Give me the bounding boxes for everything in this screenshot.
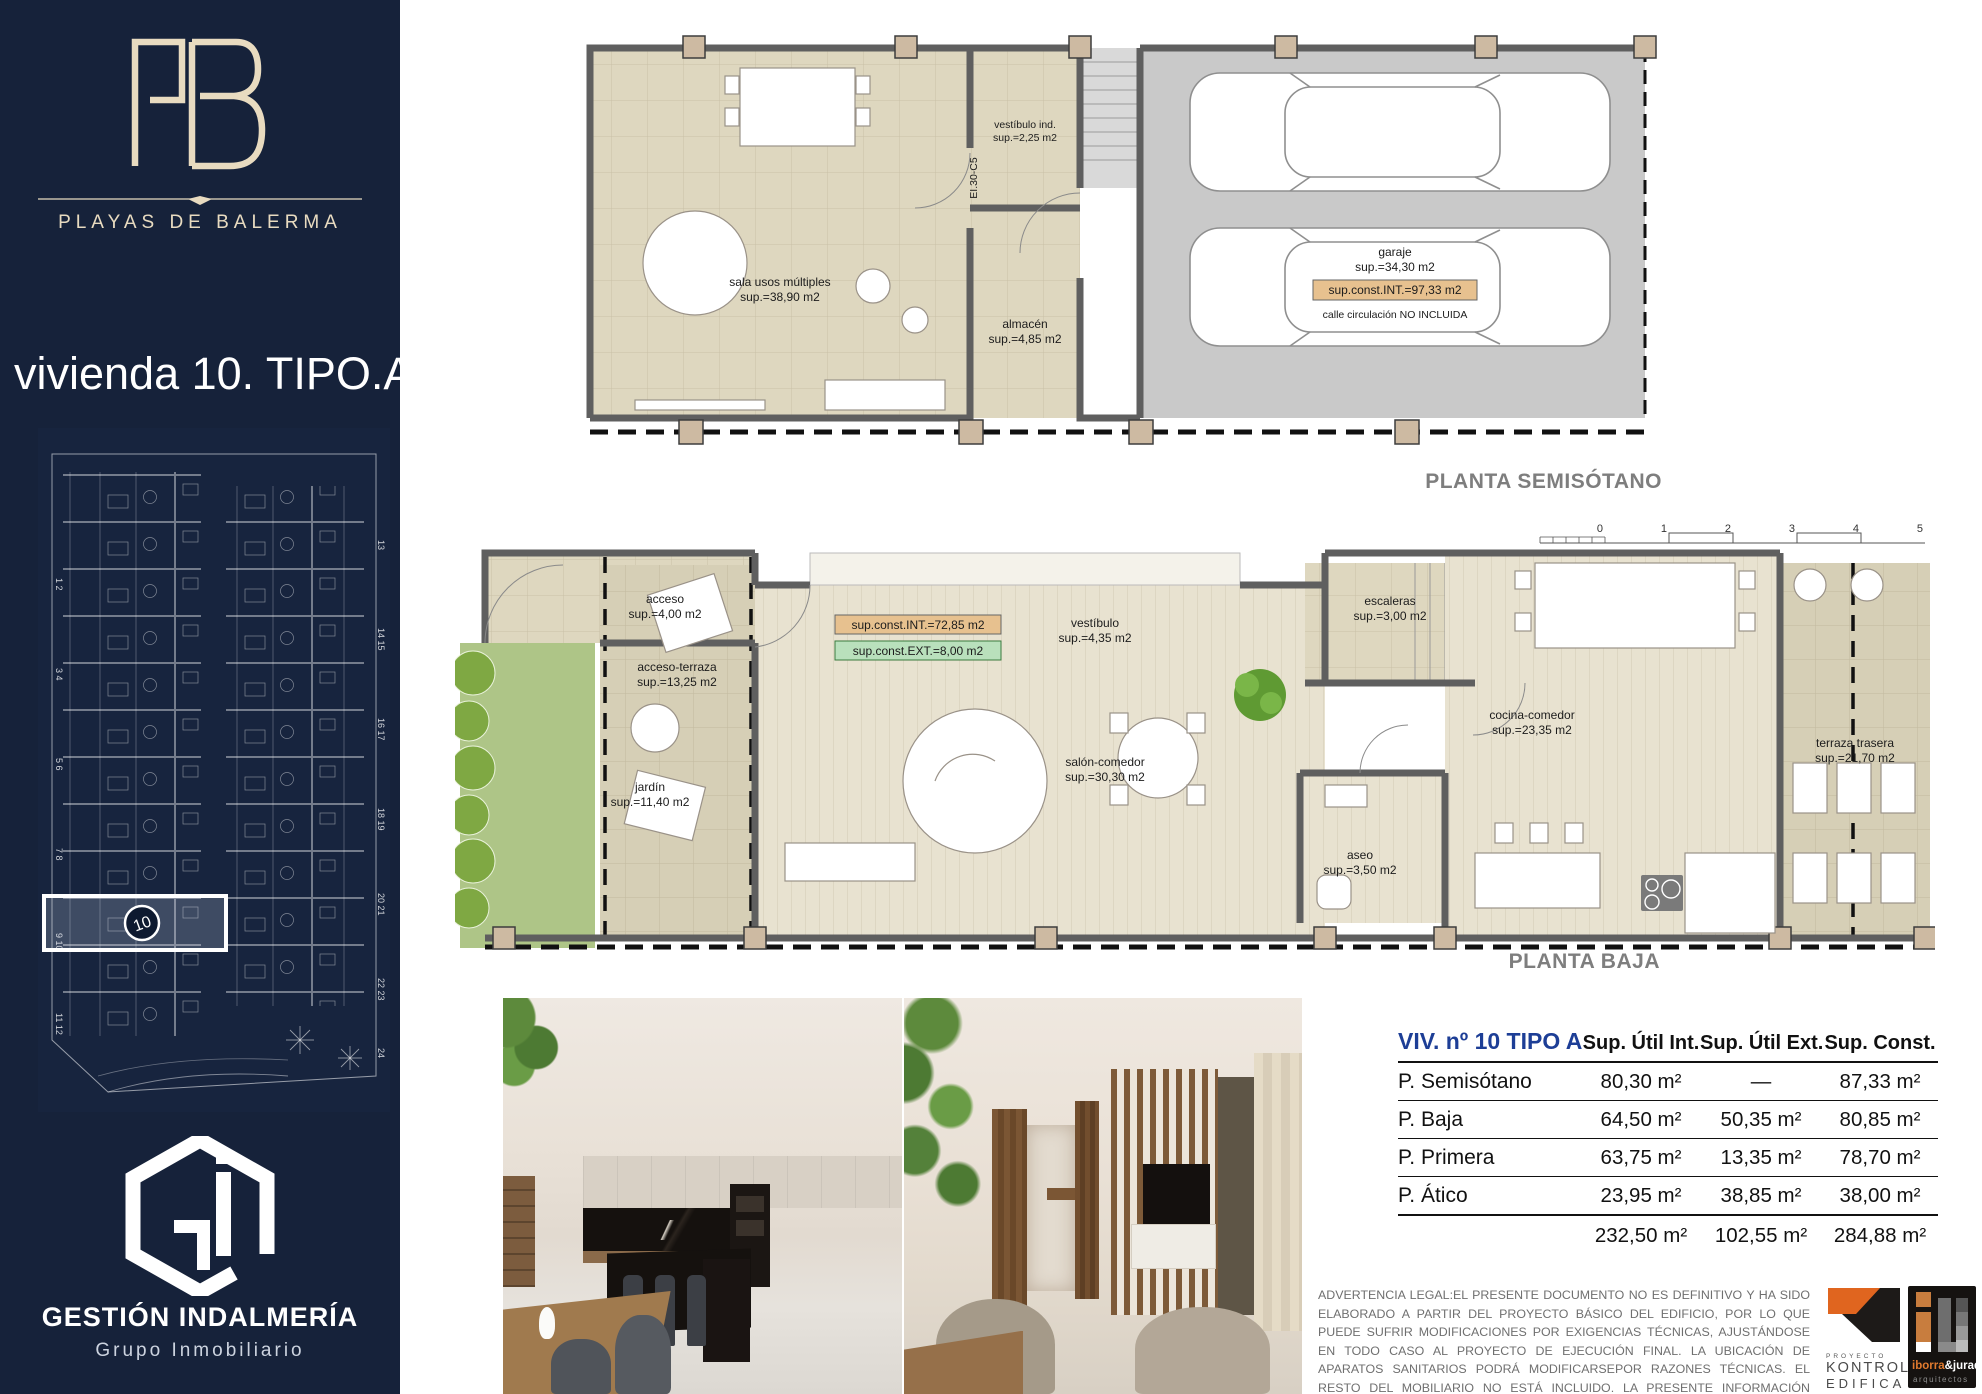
const-int-label: sup.const.INT.=97,33 m2 xyxy=(1328,283,1461,297)
svg-text:1: 1 xyxy=(1661,523,1667,535)
room-label-acceso-terraza: acceso-terraza xyxy=(637,660,717,674)
room-label-sala: sala usos múltiples xyxy=(729,275,830,289)
company-subtitle: Grupo Inmobiliario xyxy=(0,1340,400,1362)
table-header-row: VIV. nº 10 TIPO A Sup. Útil Int. Sup. Út… xyxy=(1398,1028,1938,1063)
page-title: vivienda 10. TIPO.A xyxy=(14,348,400,400)
pb-monogram-logo xyxy=(20,14,380,214)
interior-photo-living xyxy=(904,998,1302,1394)
scale-ruler-numbers: 0 1 2 3 4 5 xyxy=(1597,523,1923,535)
gi-hexagon-logo xyxy=(122,1136,278,1296)
room-sup-sala: sup.=38,90 m2 xyxy=(740,290,820,304)
row-val-ext: 38,85 m² xyxy=(1700,1184,1822,1208)
svg-text:11 12: 11 12 xyxy=(54,1013,64,1035)
room-label-terraza-trasera: terraza trasera xyxy=(1816,736,1894,750)
svg-text:13: 13 xyxy=(376,540,386,550)
siteplan-unit-10-highlight: 10 xyxy=(44,896,226,950)
svg-text:2: 2 xyxy=(1725,523,1731,535)
site-plan-blueprint: 1 2 3 4 5 6 7 8 9 10 11 12 13 14 15 16 1… xyxy=(38,428,390,1112)
svg-text:4: 4 xyxy=(1853,523,1859,535)
row-val-ext: — xyxy=(1700,1070,1822,1094)
room-label-salon: salón-comedor xyxy=(1065,755,1144,769)
room-sup-salon: sup.=30,30 m2 xyxy=(1065,770,1145,784)
row-val-ext: 13,35 m² xyxy=(1700,1146,1822,1170)
room-label-acceso: acceso xyxy=(646,592,684,606)
room-sup-acceso-terraza: sup.=13,25 m2 xyxy=(637,675,717,689)
room-label-vestibulo: vestíbulo xyxy=(1071,616,1119,630)
svg-text:24: 24 xyxy=(376,1048,386,1058)
iborra-name-part2: &jurado xyxy=(1945,1360,1982,1372)
siteplan-right-block xyxy=(226,486,364,1006)
kontrol-word-proyecto: PROYECTO xyxy=(1826,1353,1904,1360)
kontrol-word-kontrol: KONTROL xyxy=(1826,1360,1904,1376)
floorplan-semisotano: sala usos múltiples sup.=38,90 m2 vestíb… xyxy=(575,28,1665,468)
row-val-int: 63,75 m² xyxy=(1582,1146,1700,1170)
room-label-vestibulo-ind: vestíbulo ind. xyxy=(994,119,1056,131)
table-row: P. Semisótano 80,30 m² — 87,33 m² xyxy=(1398,1063,1938,1101)
svg-text:0: 0 xyxy=(1597,523,1603,535)
iborra-jurado-logo: iborra&jurado arquitectos xyxy=(1908,1286,1976,1388)
room-sup-jardin: sup.=11,40 m2 xyxy=(611,795,690,809)
room-sup-aseo: sup.=3,50 m2 xyxy=(1323,863,1396,877)
col-header-util-int: Sup. Útil Int. xyxy=(1582,1032,1700,1055)
iborra-subtitle: arquitectos xyxy=(1913,1375,1969,1384)
svg-text:3 4: 3 4 xyxy=(54,668,64,681)
row-val-const: 80,85 m² xyxy=(1822,1108,1938,1132)
tree-icon xyxy=(1234,669,1286,721)
room-sup-vestibulo-ind: sup.=2,25 m2 xyxy=(993,132,1057,144)
total-const: 284,88 m² xyxy=(1822,1224,1938,1248)
table-title: VIV. nº 10 TIPO A xyxy=(1398,1028,1582,1055)
svg-text:14 15: 14 15 xyxy=(376,628,386,651)
col-header-const: Sup. Const. xyxy=(1822,1032,1938,1055)
svg-text:5: 5 xyxy=(1917,523,1923,535)
plant-decor xyxy=(503,998,567,1101)
room-label-garaje: garaje xyxy=(1378,245,1412,259)
room-label-cocina: cocina-comedor xyxy=(1489,708,1574,722)
brand-name: PLAYAS DE BALERMA xyxy=(0,212,400,234)
room-sup-almacen: sup.=4,85 m2 xyxy=(988,332,1061,346)
room-label-aseo: aseo xyxy=(1347,848,1373,862)
room-sup-cocina: sup.=23,35 m2 xyxy=(1492,723,1572,737)
plan-title-baja: PLANTA BAJA xyxy=(1480,950,1660,974)
room-sup-terraza-trasera: sup.=21,70 m2 xyxy=(1815,751,1895,765)
row-label: P. Baja xyxy=(1398,1108,1582,1132)
sidebar: PLAYAS DE BALERMA vivienda 10. TIPO.A xyxy=(0,0,400,1394)
svg-text:22 23: 22 23 xyxy=(376,978,386,1001)
row-val-const: 38,00 m² xyxy=(1822,1184,1938,1208)
kontrol-edifica-logo: PROYECTO KONTROL EDIFICA xyxy=(1826,1284,1904,1391)
room-sup-garaje: sup.=34,30 m2 xyxy=(1355,260,1435,274)
company-name: GESTIÓN INDALMERÍA xyxy=(0,1302,400,1333)
row-val-const: 87,33 m² xyxy=(1822,1070,1938,1094)
plant-decor xyxy=(904,998,1015,1267)
kontrol-logo-mark xyxy=(1826,1284,1904,1346)
svg-text:3: 3 xyxy=(1789,523,1795,535)
kontrol-word-edifica: EDIFICA xyxy=(1826,1376,1904,1391)
room-label-almacen: almacén xyxy=(1002,317,1047,331)
calle-note-label: calle circulación NO INCLUIDA xyxy=(1323,309,1468,321)
brochure-page: PLAYAS DE BALERMA vivienda 10. TIPO.A xyxy=(0,0,1982,1394)
const-int-label-baja: sup.const.INT.=72,85 m2 xyxy=(851,618,984,632)
row-val-int: 80,30 m² xyxy=(1582,1070,1700,1094)
surface-summary-table: VIV. nº 10 TIPO A Sup. Útil Int. Sup. Út… xyxy=(1398,1028,1938,1248)
row-val-const: 78,70 m² xyxy=(1822,1146,1938,1170)
svg-text:7 8: 7 8 xyxy=(54,848,64,861)
plan-title-semisotano: PLANTA SEMISÓTANO xyxy=(1400,470,1662,494)
floorplan-baja: 0 1 2 3 4 5 xyxy=(455,523,1935,955)
room-sup-acceso: sup.=4,00 m2 xyxy=(628,607,701,621)
svg-text:16 17: 16 17 xyxy=(376,718,386,741)
const-ext-label-baja: sup.const.EXT.=8,00 m2 xyxy=(853,644,984,658)
row-val-ext: 50,35 m² xyxy=(1700,1108,1822,1132)
table-row: P. Ático 23,95 m² 38,85 m² 38,00 m² xyxy=(1398,1177,1938,1216)
iborra-name-part1: iborra xyxy=(1912,1360,1945,1372)
interior-photo-kitchen xyxy=(503,998,902,1394)
total-ext: 102,55 m² xyxy=(1700,1224,1822,1248)
row-val-int: 64,50 m² xyxy=(1582,1108,1700,1132)
row-val-int: 23,95 m² xyxy=(1582,1184,1700,1208)
svg-text:20 21: 20 21 xyxy=(376,893,386,916)
iborra-name: iborra&jurado xyxy=(1912,1360,1982,1372)
row-label: P. Ático xyxy=(1398,1184,1582,1208)
row-label: P. Semisótano xyxy=(1398,1070,1582,1094)
svg-text:18 19: 18 19 xyxy=(376,808,386,831)
svg-text:5 6: 5 6 xyxy=(54,758,64,771)
room-label-escaleras: escaleras xyxy=(1364,594,1415,608)
legal-disclaimer: ADVERTENCIA LEGAL:EL PRESENTE DOCUMENTO … xyxy=(1318,1286,1810,1394)
table-row: P. Baja 64,50 m² 50,35 m² 80,85 m² xyxy=(1398,1101,1938,1139)
col-header-util-ext: Sup. Útil Ext. xyxy=(1700,1032,1822,1055)
row-label: P. Primera xyxy=(1398,1146,1582,1170)
room-label-jardin: jardín xyxy=(634,780,665,794)
iborra-logo-mark xyxy=(1908,1286,1976,1356)
door-code-label: EI.30-C5 xyxy=(968,157,980,199)
room-sup-vestibulo: sup.=4,35 m2 xyxy=(1058,631,1131,645)
total-int: 232,50 m² xyxy=(1582,1224,1700,1248)
room-sup-escaleras: sup.=3,00 m2 xyxy=(1353,609,1426,623)
table-totals-row: 232,50 m² 102,55 m² 284,88 m² xyxy=(1398,1216,1938,1248)
table-row: P. Primera 63,75 m² 13,35 m² 78,70 m² xyxy=(1398,1139,1938,1177)
svg-text:1 2: 1 2 xyxy=(54,578,64,591)
